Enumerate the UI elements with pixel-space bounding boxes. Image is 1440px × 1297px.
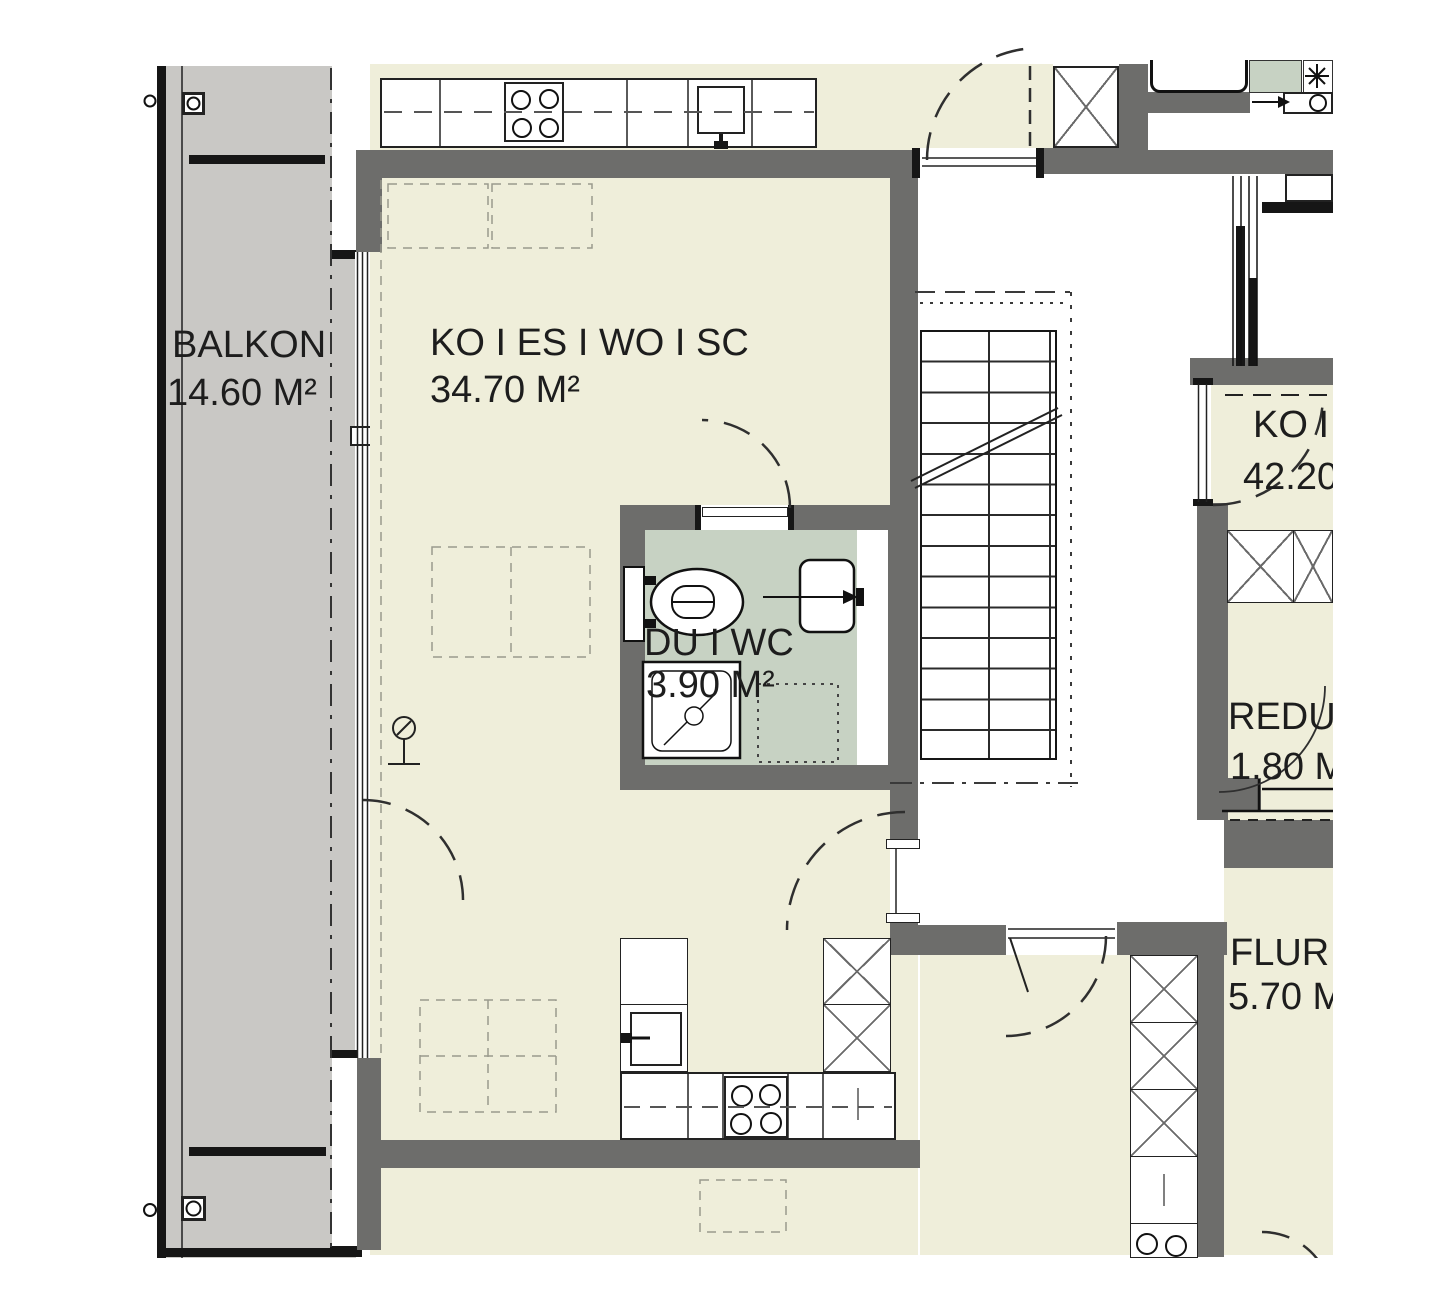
room-bath-area: 3.90 M²: [646, 666, 775, 706]
door-swing-arcs: [363, 48, 1332, 1258]
shower-head-icon: [1305, 64, 1329, 88]
fixture-symbol: [388, 717, 420, 764]
room-bath-label: DU I WC: [644, 624, 794, 664]
room-balkon-label: BALKON: [172, 326, 326, 366]
duct-lines: [1233, 176, 1257, 366]
room-living-label: KO I ES I WO I SC: [430, 324, 749, 364]
hook-icon: [144, 1204, 156, 1216]
door-thresholds: [896, 158, 1115, 992]
room-balkon-area: 14.60 M²: [167, 374, 317, 414]
room-flur-label: FLUR: [1230, 934, 1329, 974]
room-flur-area: 5.70 M: [1228, 978, 1333, 1018]
floor-plan-canvas: BALKON 14.60 M² KO I ES I WO I SC 34.70 …: [0, 0, 1440, 1297]
floor-plan-content: BALKON 14.60 M² KO I ES I WO I SC 34.70 …: [0, 0, 1333, 1258]
room-right-label: KO I: [1253, 406, 1329, 446]
room-right-area: 42.20: [1243, 458, 1333, 498]
stairs-dashed-outline: [890, 292, 1078, 787]
stove-burners: [1137, 1234, 1186, 1256]
stove-burners: [731, 1085, 781, 1134]
room-reduit-label: REDU: [1228, 698, 1333, 738]
faucet-arrow-head: [1278, 96, 1290, 108]
stairs-break-line: [911, 408, 1062, 488]
room-living-area: 34.70 M²: [430, 371, 580, 411]
hook-icon: [145, 96, 156, 107]
drain-circle: [187, 1202, 201, 1216]
stove-burners: [512, 90, 558, 137]
drain-circle: [188, 98, 200, 110]
room-reduit-area: 1.80 M: [1230, 748, 1333, 788]
washbasin-bowl: [1310, 95, 1326, 111]
